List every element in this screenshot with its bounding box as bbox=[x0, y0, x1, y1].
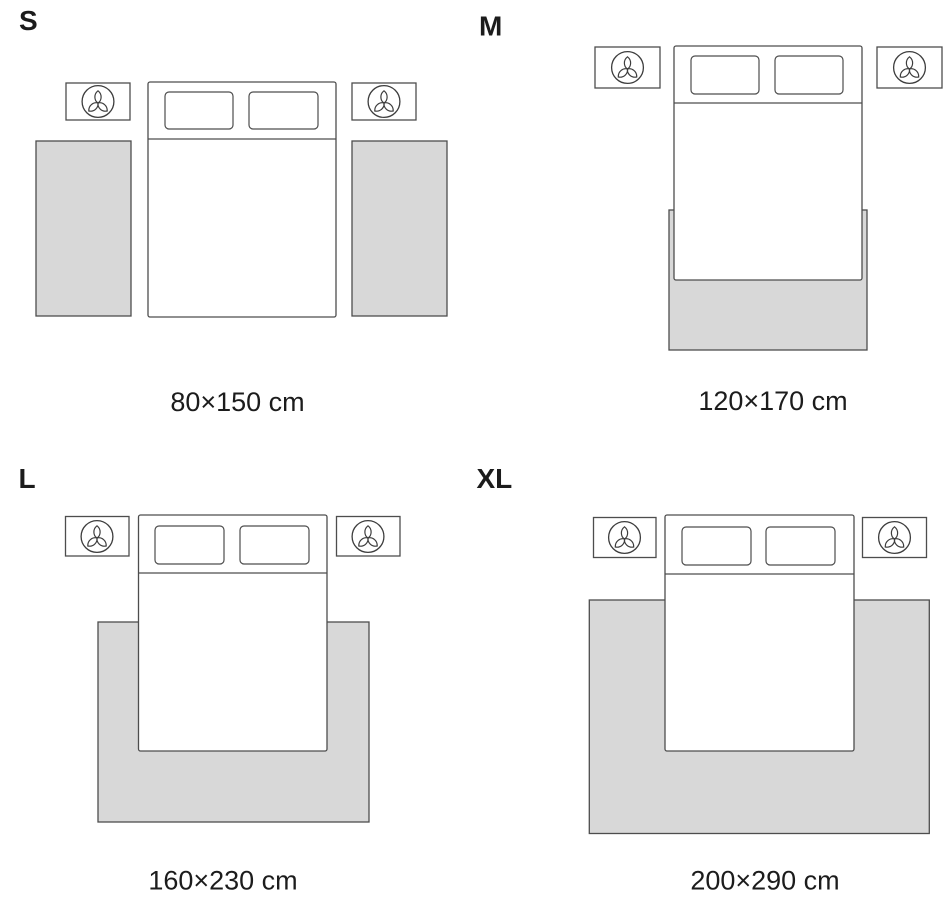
svg-text:200×290 cm: 200×290 cm bbox=[690, 866, 839, 896]
svg-text:XL: XL bbox=[477, 463, 513, 494]
svg-text:S: S bbox=[19, 5, 38, 36]
svg-text:160×230 cm: 160×230 cm bbox=[148, 866, 297, 896]
svg-text:L: L bbox=[19, 463, 36, 494]
svg-text:120×170 cm: 120×170 cm bbox=[698, 386, 847, 416]
svg-text:80×150 cm: 80×150 cm bbox=[170, 387, 304, 417]
svg-text:M: M bbox=[479, 11, 502, 42]
